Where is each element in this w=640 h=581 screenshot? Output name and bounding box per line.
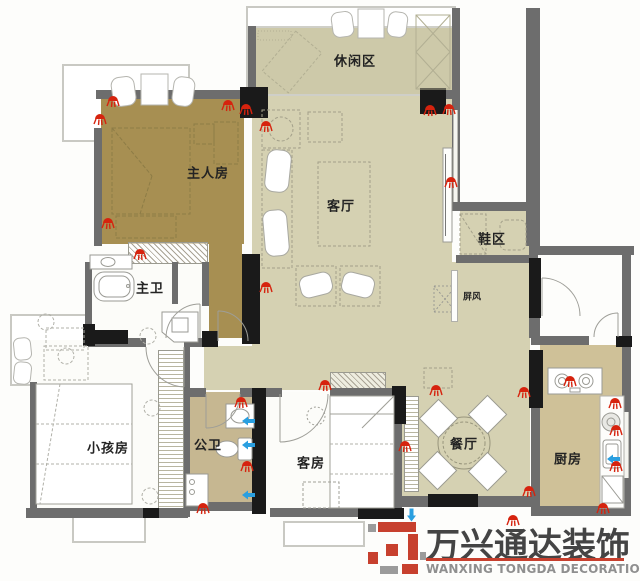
watermark-underline <box>426 558 624 561</box>
kitchen-fixtures <box>548 368 624 508</box>
room-label-guest: 客房 <box>297 453 325 472</box>
ceiling-light-marker <box>221 97 235 110</box>
ceiling-light-marker <box>259 279 273 292</box>
ceiling-light-marker <box>240 458 254 471</box>
kids-bed <box>36 314 160 504</box>
floor-plan: 休闲区 主人房 客厅 鞋区 屏风 主卫 小孩房 公卫 客房 餐厅 厨房 万兴通达… <box>0 0 640 581</box>
room-label-shoe: 鞋区 <box>478 229 506 248</box>
ceiling-light-marker <box>239 101 253 114</box>
ceiling-light-marker <box>609 422 623 435</box>
room-label-guest-bath: 公卫 <box>194 435 222 454</box>
water-point-marker <box>607 449 621 462</box>
ceiling-light-marker <box>398 438 412 451</box>
sofa-cushions <box>262 149 376 300</box>
ceiling-light-marker <box>234 394 248 407</box>
ceiling-light-marker <box>133 246 147 259</box>
water-point-marker <box>242 485 256 498</box>
folding-screen <box>451 270 458 322</box>
ceiling-light-marker <box>259 118 273 131</box>
room-label-leisure: 休闲区 <box>334 51 376 70</box>
water-point-marker <box>242 411 256 424</box>
living-furniture <box>262 110 452 388</box>
water-point-marker <box>242 435 256 448</box>
ceiling-light-marker <box>429 382 443 395</box>
room-label-kids: 小孩房 <box>87 438 129 457</box>
room-label-master-bath: 主卫 <box>136 278 164 297</box>
ceiling-light-marker <box>444 174 458 187</box>
watermark: 万兴通达装饰 WANXING TONGDA DECORATION <box>364 498 638 578</box>
ceiling-light-marker <box>442 101 456 114</box>
ceiling-light-marker <box>522 483 536 496</box>
ceiling-light-marker <box>101 215 115 228</box>
ceiling-light-marker <box>106 93 120 106</box>
room-label-kitchen: 厨房 <box>554 449 582 468</box>
ceiling-light-marker <box>93 111 107 124</box>
room-label-master: 主人房 <box>187 163 229 182</box>
ceiling-light-marker <box>563 373 577 386</box>
room-label-dining: 餐厅 <box>450 434 478 453</box>
room-label-living: 客厅 <box>327 196 355 215</box>
ceiling-light-marker <box>196 500 210 513</box>
watermark-company-name-en: WANXING TONGDA DECORATION <box>426 562 640 576</box>
watermark-logo-icon <box>368 522 422 574</box>
ceiling-light-marker <box>517 384 531 397</box>
tv-console <box>443 148 452 242</box>
bathtub <box>90 255 198 342</box>
furniture-layer <box>0 0 640 581</box>
room-label-screen: 屏风 <box>463 290 481 303</box>
ceiling-light-marker <box>423 102 437 115</box>
ceiling-light-marker <box>318 377 332 390</box>
ceiling-light-marker <box>608 395 622 408</box>
